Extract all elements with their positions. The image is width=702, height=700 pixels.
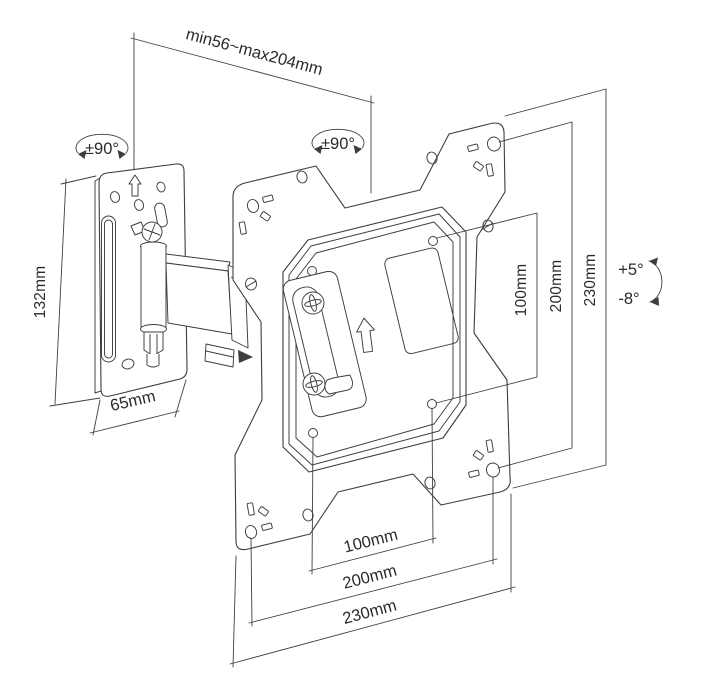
arm-front-face — [166, 263, 232, 334]
dim-label: 200mm — [548, 260, 565, 313]
dim-right-200: 200mm — [498, 122, 572, 468]
wall-mount-dimension-diagram: min56~max204mm ±90° ±90° 132mm 65mm 100m… — [0, 0, 702, 700]
dim-wall-plate-height: 132mm — [32, 176, 100, 406]
bolt-tip — [147, 354, 159, 367]
technical-diagram: min56~max204mm ±90° ±90° 132mm 65mm 100m… — [0, 0, 702, 700]
dim-tilt-angle: +5° -8° — [618, 258, 662, 309]
dim-label: ±90° — [321, 135, 355, 153]
phillips-screw-icon — [302, 292, 324, 314]
cable-clip — [205, 344, 234, 367]
hinge-column — [141, 246, 166, 328]
dim-label: ±90° — [85, 140, 119, 158]
dim-swivel-left: ±90° — [76, 134, 128, 159]
dim-label: 230mm — [341, 596, 399, 628]
dim-label: 100mm — [342, 526, 400, 557]
tilt-arrow-icon — [649, 261, 662, 302]
arm-hook-icon — [238, 350, 253, 363]
dim-label: +5° — [618, 261, 643, 279]
dim-label: 200mm — [341, 562, 399, 593]
dim-label: 132mm — [32, 266, 49, 319]
phillips-screw-icon — [303, 373, 325, 395]
vesa-plate — [233, 123, 510, 550]
dim-label: 100mm — [513, 264, 530, 317]
dim-label: -8° — [618, 290, 639, 308]
dim-swivel-right: ±90° — [312, 129, 364, 154]
dim-label: 230mm — [582, 254, 599, 307]
